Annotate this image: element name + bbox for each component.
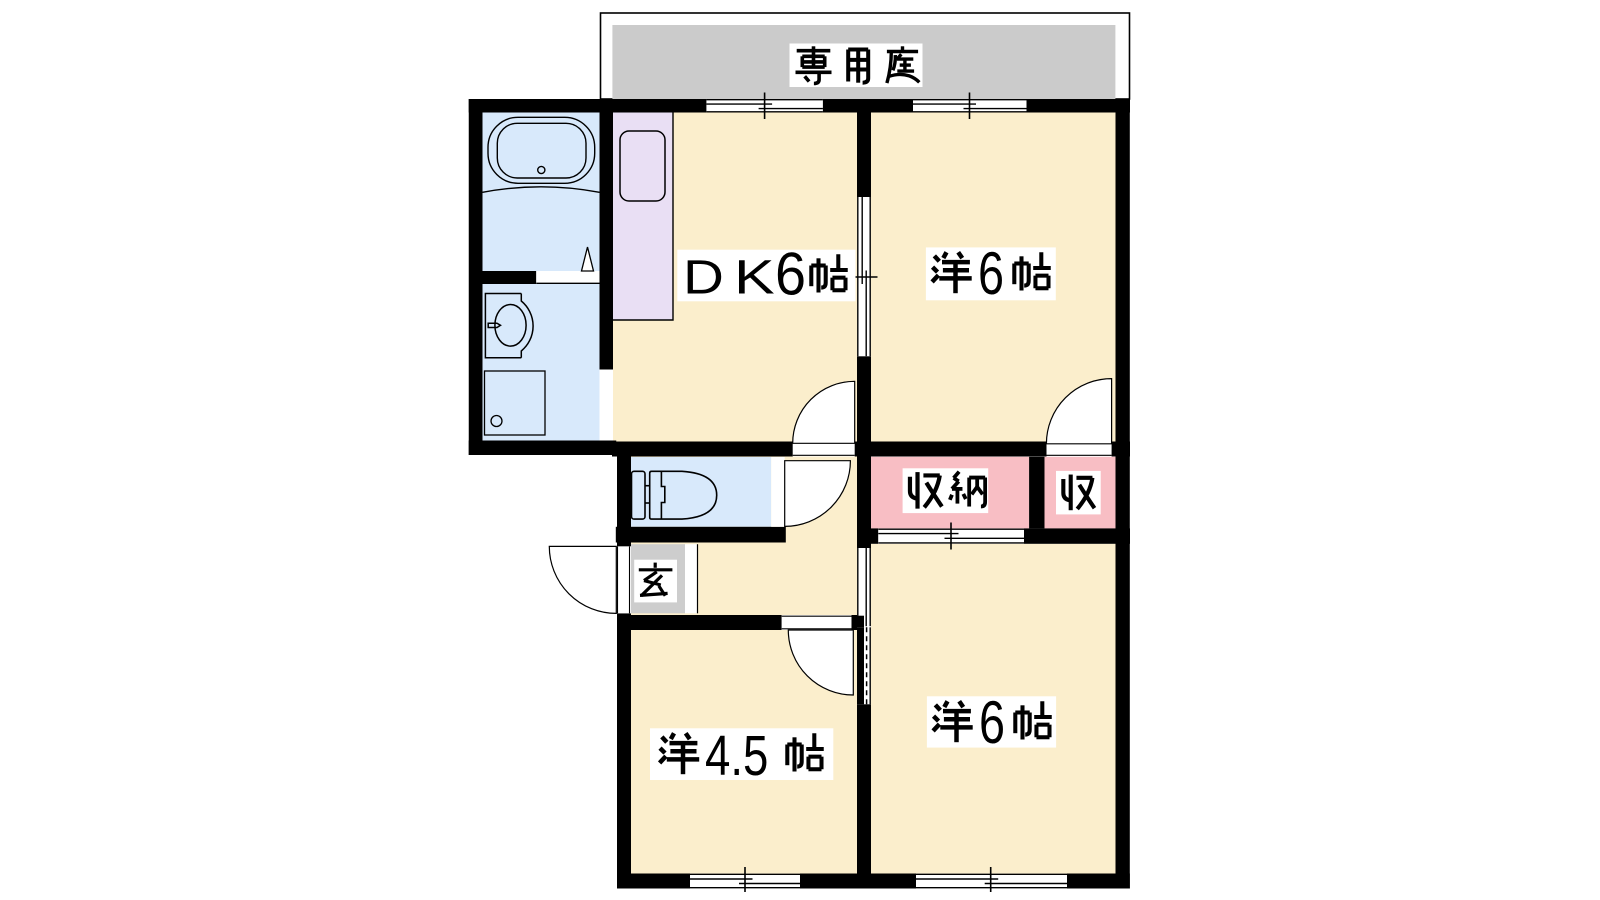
svg-text:6: 6 — [775, 242, 806, 308]
svg-text:D: D — [683, 251, 724, 305]
svg-text:6: 6 — [978, 240, 1004, 307]
svg-text:6: 6 — [979, 689, 1005, 756]
svg-text:4.5: 4.5 — [705, 723, 768, 787]
svg-text:K: K — [734, 250, 775, 304]
